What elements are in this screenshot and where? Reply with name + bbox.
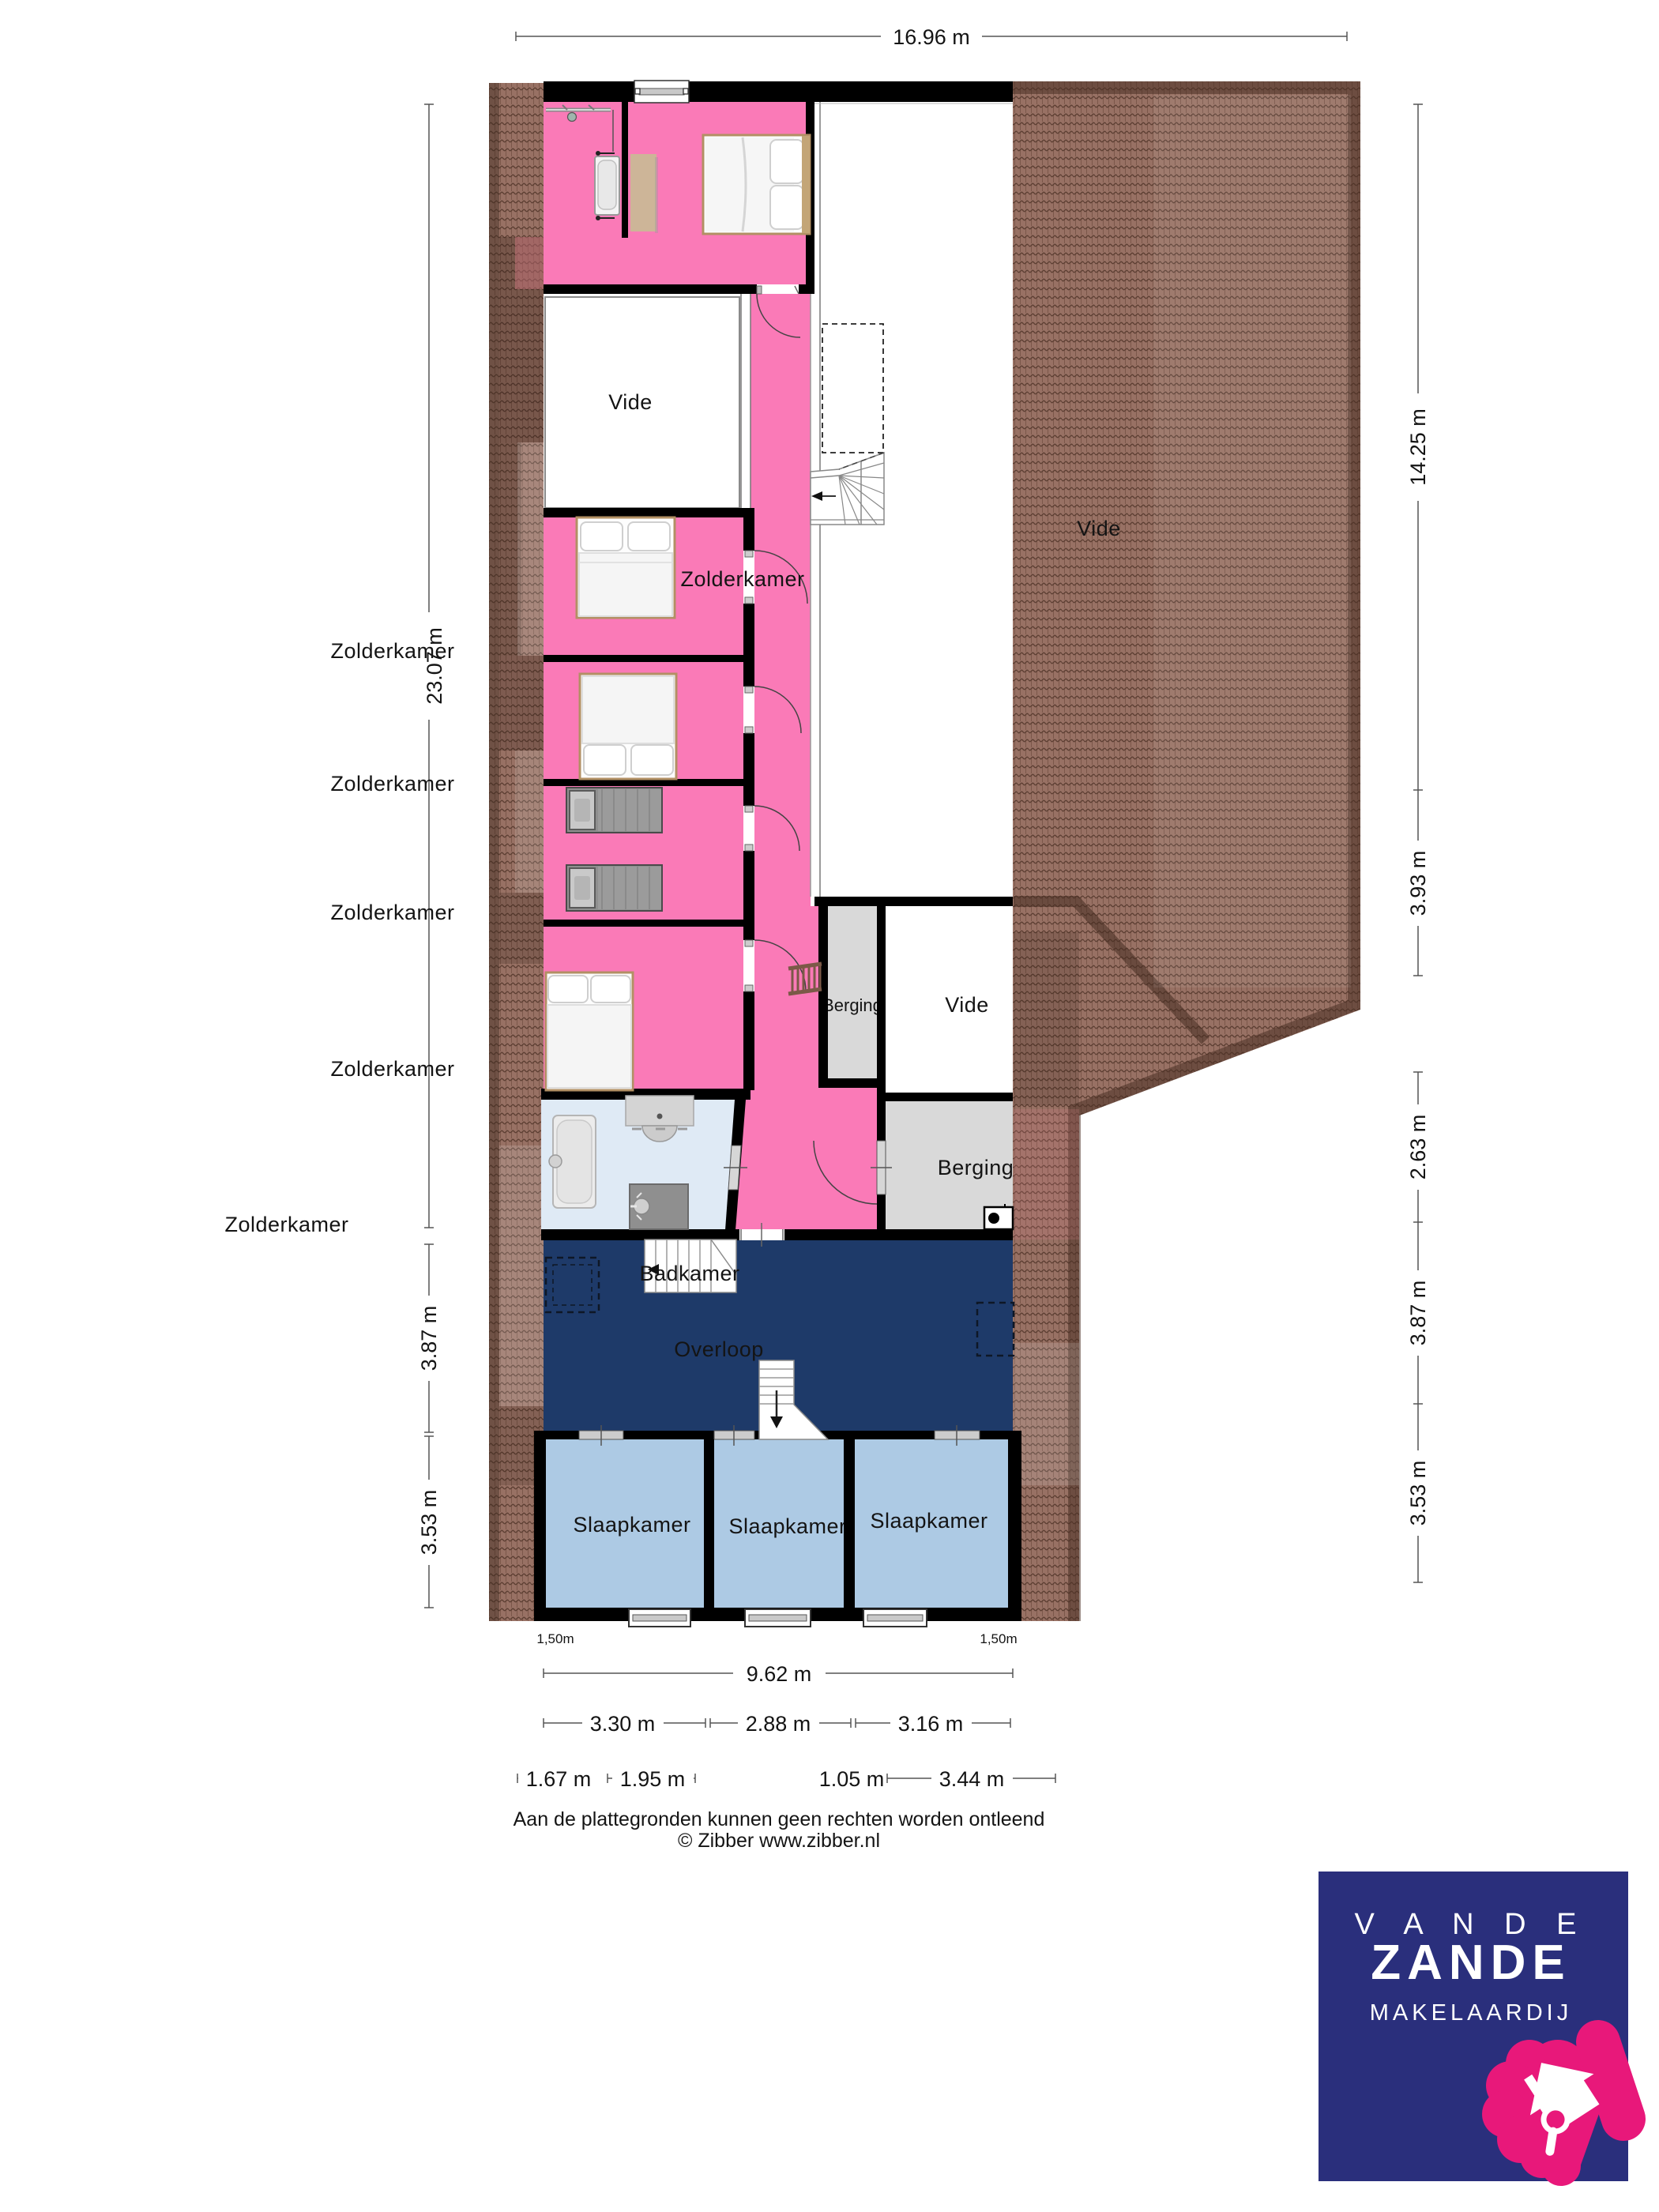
svg-text:Slaapkamer: Slaapkamer	[870, 1509, 987, 1533]
svg-text:1,50m: 1,50m	[980, 1631, 1017, 1646]
svg-text:16.96 m: 16.96 m	[893, 25, 970, 49]
svg-text:Overloop: Overloop	[674, 1337, 764, 1361]
svg-text:Zolderkamer: Zolderkamer	[330, 772, 454, 796]
svg-text:3.16 m: 3.16 m	[898, 1712, 964, 1736]
svg-text:3.53 m: 3.53 m	[1406, 1461, 1430, 1526]
svg-text:Slaapkamer: Slaapkamer	[573, 1513, 690, 1537]
svg-text:1,50m: 1,50m	[536, 1631, 574, 1646]
svg-text:Vide: Vide	[945, 993, 989, 1017]
svg-text:3.44 m: 3.44 m	[939, 1767, 1005, 1791]
svg-text:Berging: Berging	[822, 995, 882, 1015]
svg-text:Zolderkamer: Zolderkamer	[224, 1213, 348, 1236]
svg-text:3.87 m: 3.87 m	[1406, 1281, 1430, 1346]
svg-text:1.05 m: 1.05 m	[819, 1767, 885, 1791]
svg-text:1.95 m: 1.95 m	[620, 1767, 686, 1791]
svg-text:MAKELAARDIJ: MAKELAARDIJ	[1370, 2000, 1572, 2026]
svg-text:Zolderkamer: Zolderkamer	[330, 1057, 454, 1081]
svg-text:3.87 m: 3.87 m	[417, 1306, 441, 1371]
svg-text:2.63 m: 2.63 m	[1406, 1115, 1430, 1180]
svg-text:Zolderkamer: Zolderkamer	[330, 901, 454, 924]
svg-text:Slaapkamer: Slaapkamer	[728, 1514, 846, 1538]
svg-text:Aan de plattegronden kunnen ge: Aan de plattegronden kunnen geen rechten…	[513, 1808, 1045, 1830]
svg-text:Zolderkamer: Zolderkamer	[680, 567, 804, 591]
svg-text:Vide: Vide	[1077, 517, 1121, 540]
svg-text:1.67 m: 1.67 m	[526, 1767, 592, 1791]
svg-text:3.93 m: 3.93 m	[1406, 851, 1430, 916]
svg-text:9.62 m: 9.62 m	[747, 1662, 812, 1686]
svg-text:Vide: Vide	[608, 390, 653, 414]
svg-text:Berging: Berging	[938, 1156, 1014, 1179]
svg-text:Badkamer: Badkamer	[639, 1262, 739, 1285]
svg-text:Zolderkamer: Zolderkamer	[330, 639, 454, 663]
svg-text:ZANDE: ZANDE	[1371, 1935, 1571, 1990]
svg-text:© Zibber www.zibber.nl: © Zibber www.zibber.nl	[678, 1830, 880, 1852]
svg-text:2.88 m: 2.88 m	[746, 1712, 811, 1736]
svg-text:3.30 m: 3.30 m	[590, 1712, 656, 1736]
svg-text:3.53 m: 3.53 m	[417, 1490, 441, 1556]
svg-text:14.25 m: 14.25 m	[1406, 408, 1430, 486]
